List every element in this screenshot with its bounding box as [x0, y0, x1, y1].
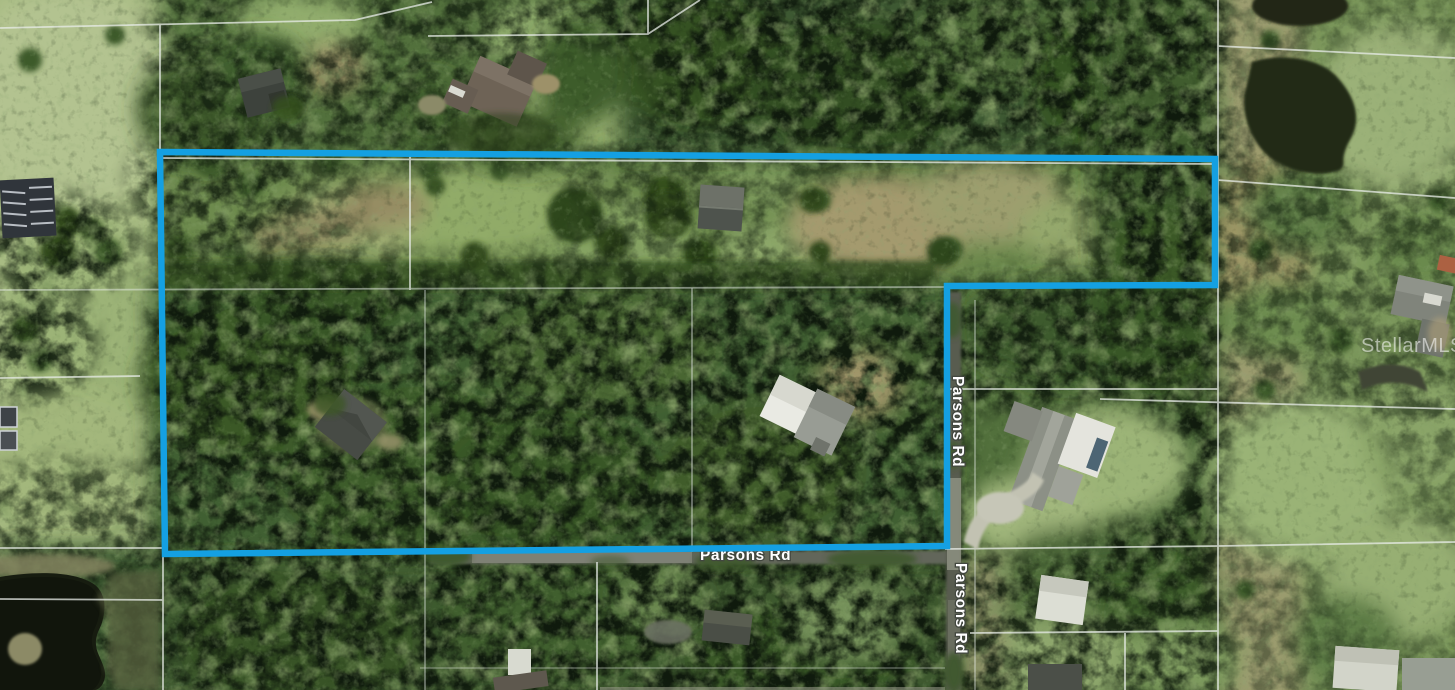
svg-text:StellarMLS: StellarMLS: [1361, 335, 1455, 357]
svg-text:Parsons Rd: Parsons Rd: [952, 563, 969, 654]
svg-text:Parsons Rd: Parsons Rd: [949, 376, 966, 467]
